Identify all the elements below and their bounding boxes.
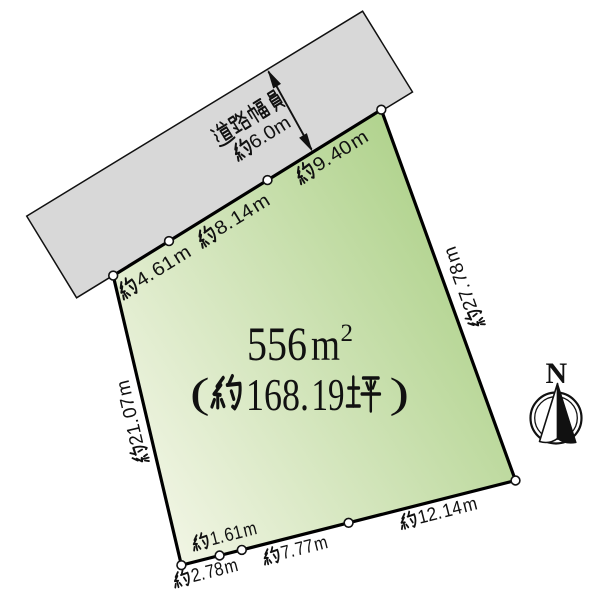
svg-text:(: ( [190, 370, 210, 417]
svg-text:): ) [390, 370, 410, 417]
svg-text:m: m [311, 319, 340, 370]
svg-text:168.: 168. [246, 369, 309, 420]
svg-text:19: 19 [312, 369, 345, 420]
svg-text:2: 2 [341, 320, 354, 347]
svg-text:556: 556 [247, 318, 307, 371]
